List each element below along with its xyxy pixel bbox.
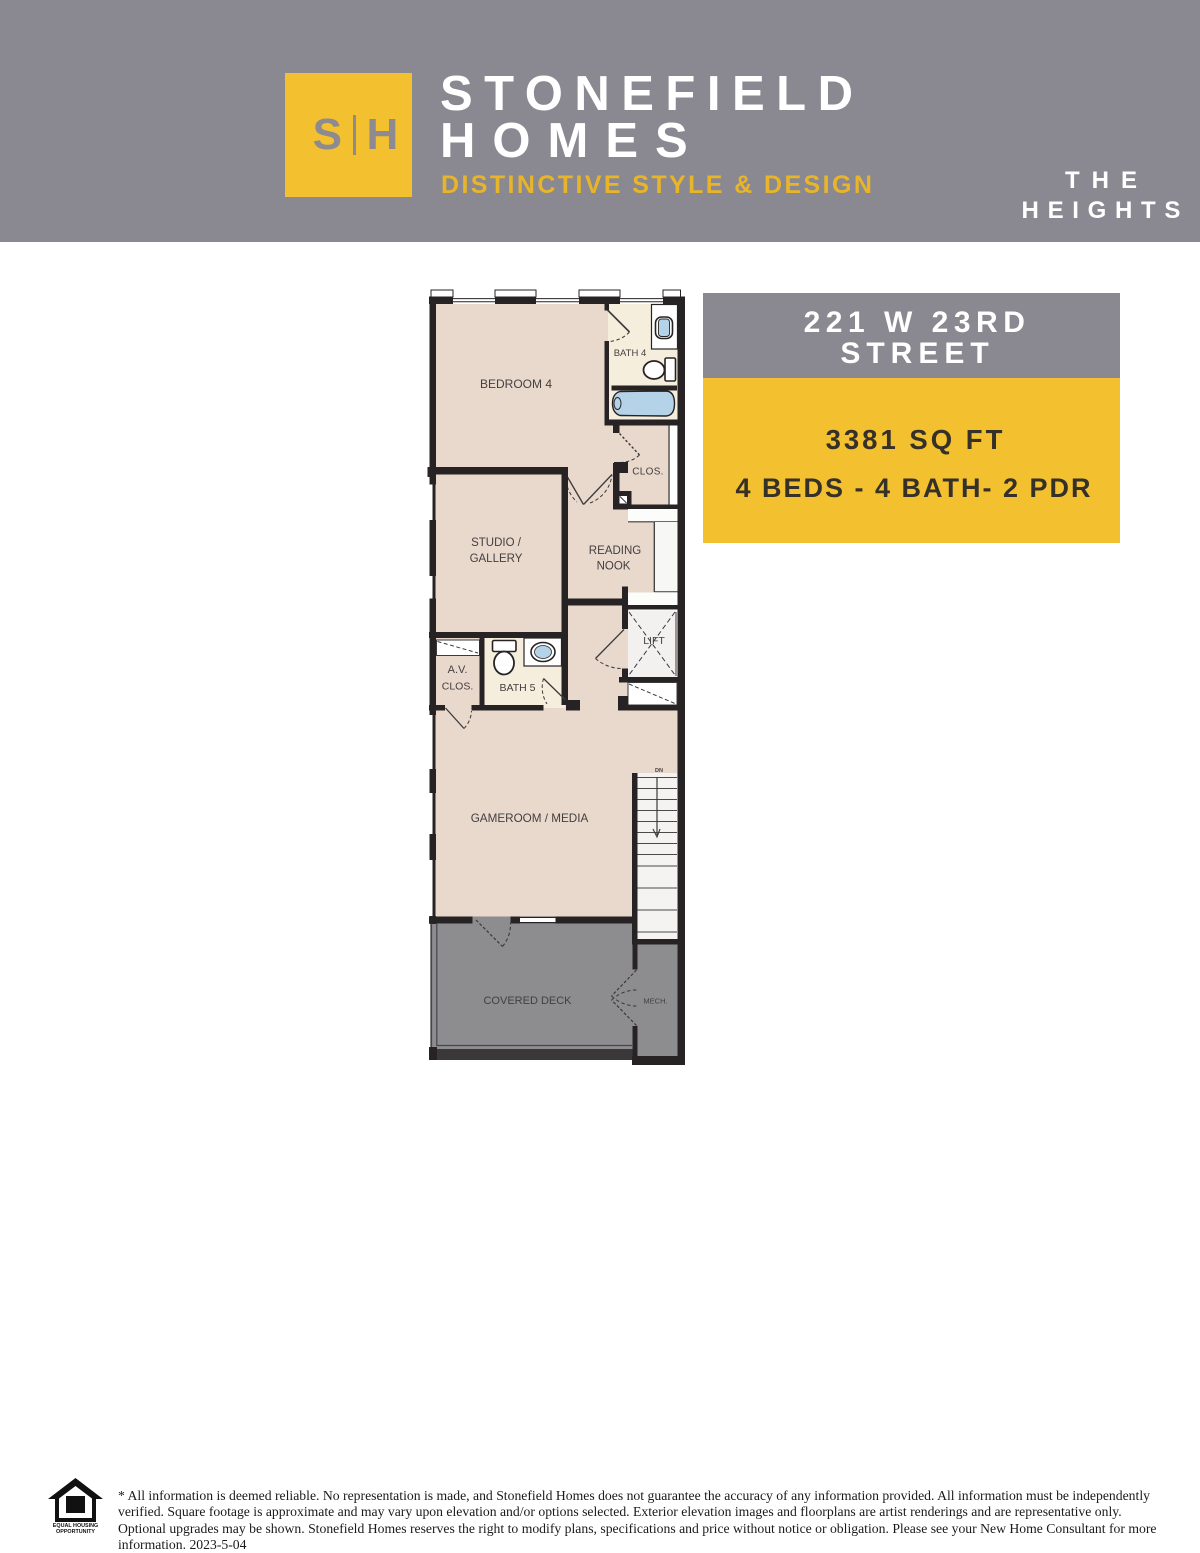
svg-text:OPPORTUNITY: OPPORTUNITY [56,1529,95,1534]
svg-text:BATH 5: BATH 5 [500,682,536,694]
svg-text:GAMEROOM / MEDIA: GAMEROOM / MEDIA [471,812,589,825]
svg-text:CLOS.: CLOS. [442,681,474,693]
svg-text:CLOS.: CLOS. [632,467,664,478]
svg-text:MECH.: MECH. [643,997,667,1006]
svg-text:A.V.: A.V. [448,664,468,676]
svg-text:NOOK: NOOK [597,561,631,573]
svg-text:LIFT: LIFT [643,635,665,647]
svg-text:GALLERY: GALLERY [470,553,523,565]
svg-text:STUDIO /: STUDIO / [471,537,522,549]
svg-text:DN: DN [655,768,663,774]
svg-text:BEDROOM 4: BEDROOM 4 [480,377,552,391]
svg-text:BATH 4: BATH 4 [614,348,647,359]
svg-text:READING: READING [589,545,641,557]
svg-text:COVERED DECK: COVERED DECK [483,995,572,1007]
